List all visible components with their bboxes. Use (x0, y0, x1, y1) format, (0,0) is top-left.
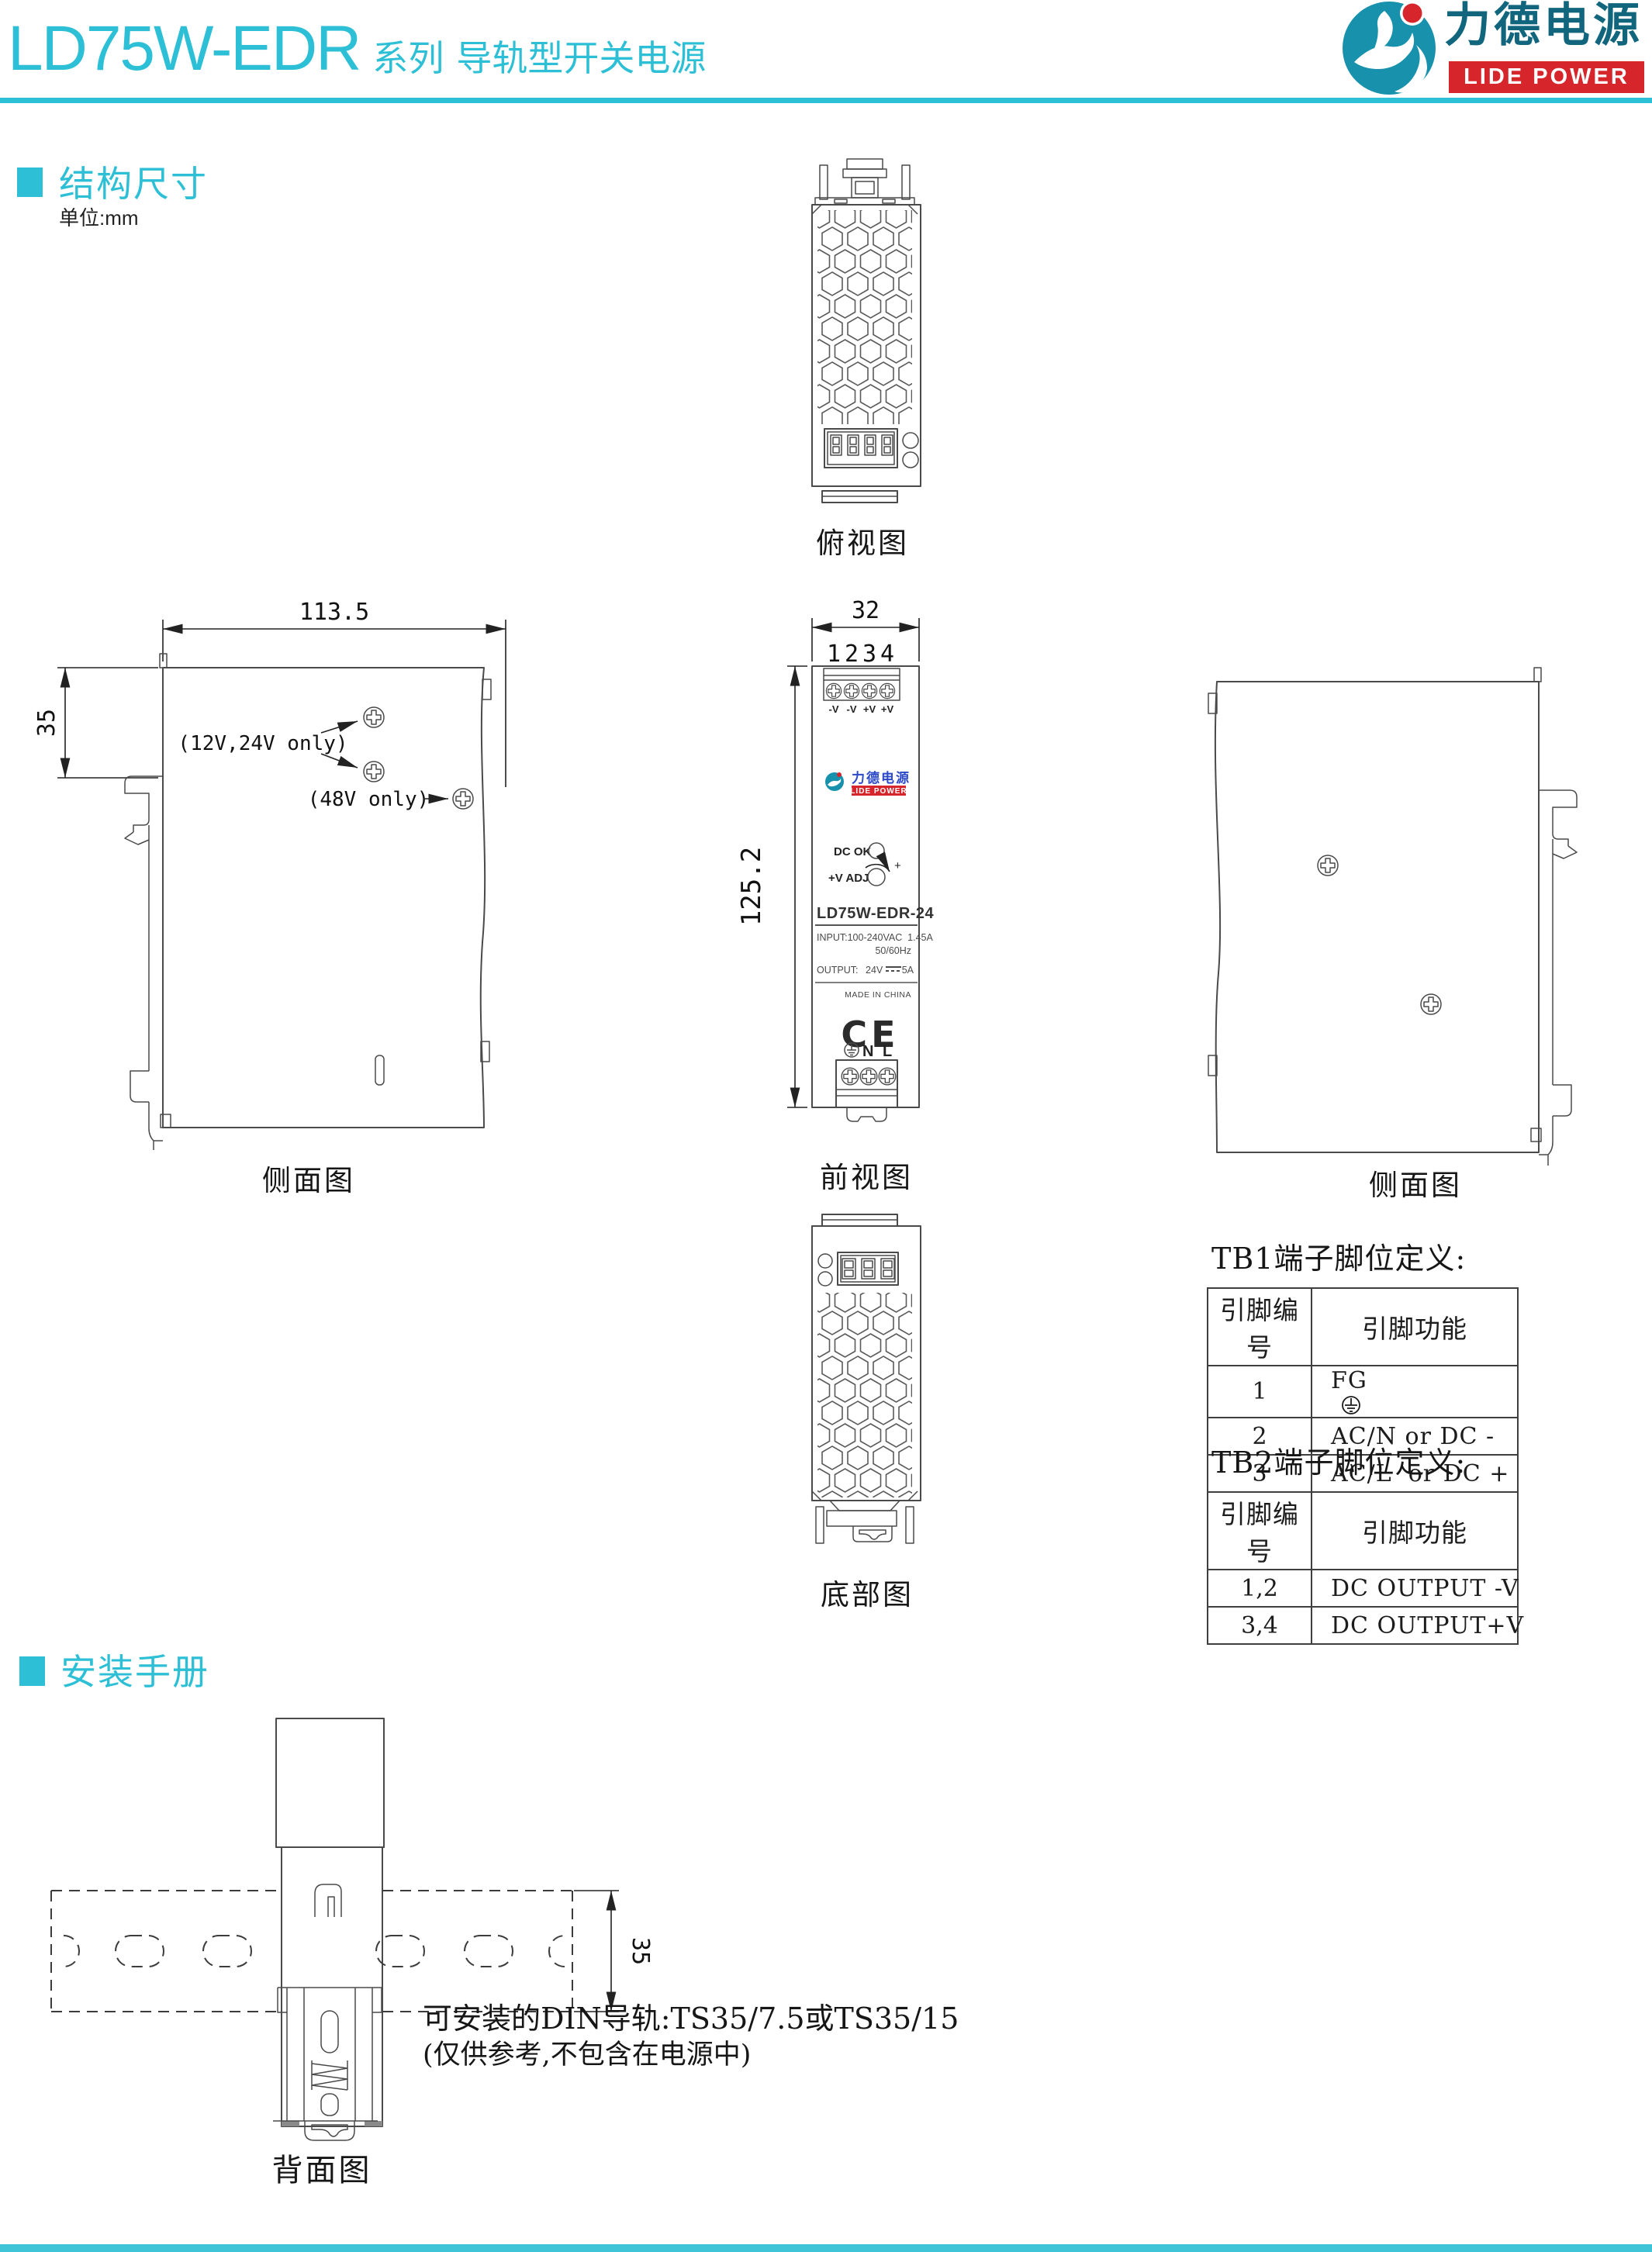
v-adj-plus: + (894, 859, 901, 872)
top-view-caption: 俯视图 (785, 520, 940, 561)
panel-logo-zh: 力德电源 (852, 770, 911, 786)
product-model: LD75W-EDR (8, 17, 360, 81)
panel-output-current: 5A (902, 965, 914, 976)
dim-width-113-5: 113.5 (299, 599, 369, 626)
pin-number-4: 4 (880, 641, 894, 668)
pin-number-2: 2 (845, 641, 859, 668)
terminal-label-neg-v-2: -V (847, 703, 857, 715)
bottom-view-drawing (807, 1198, 923, 1559)
side-view-left-caption: 侧面图 (231, 1157, 386, 1199)
screw-icon (1421, 994, 1441, 1014)
v-adj-label: +V ADJ (828, 872, 869, 885)
section-marker (19, 1656, 45, 1686)
dim-rail-35: 35 (627, 1937, 654, 1965)
tb2-terminal-block (824, 668, 900, 700)
din-rail-note: 可安装的DIN导轨:TS35/7.5或TS35/15 (423, 1995, 959, 2037)
screw-icon (453, 789, 473, 809)
front-view-caption: 前视图 (789, 1154, 944, 1196)
product-series: 系列 (372, 39, 444, 78)
page-title: LD75W-EDR 系列 导轨型开关电源 (8, 17, 706, 81)
tb2-col-func: 引脚功能 (1312, 1492, 1518, 1570)
logo-zh-text: 力德电源 (1444, 0, 1643, 51)
screw-icon (1318, 855, 1338, 876)
pin-number-3: 3 (862, 641, 876, 668)
bottom-view-caption: 底部图 (790, 1571, 945, 1613)
page-footer-bar (0, 2244, 1652, 2252)
tb2-table: 引脚编号 引脚功能 1,2 DC OUTPUT -V 3,4 DC OUTPUT… (1207, 1491, 1519, 1645)
panel-logo-icon (825, 772, 844, 791)
screw-icon (364, 762, 384, 782)
header-divider (0, 98, 1652, 103)
tb1-col-pin: 引脚编号 (1208, 1288, 1312, 1366)
lide-logo-icon (1340, 0, 1443, 98)
terminal-label-pos-v-1: +V (863, 703, 876, 715)
table-row: 1 FG (1208, 1366, 1518, 1418)
note-12v-24v-only: (12V,24V only) (178, 732, 347, 755)
panel-model: LD75W-EDR-24 (817, 905, 935, 922)
tb1-title: TB1端子脚位定义: (1211, 1235, 1520, 1277)
made-in-label: MADE IN CHINA (845, 990, 911, 1000)
panel-input-spec: INPUT:100-240VAC 1.45A (817, 932, 934, 943)
back-view-caption: 背面图 (244, 2145, 399, 2190)
product-type: 导轨型开关电源 (456, 39, 706, 78)
panel-logo-en: LIDE POWER (850, 787, 907, 796)
din-rail-note-2: (仅供参考,不包含在电源中) (423, 2033, 751, 2072)
section-install-label: 安装手册 (60, 1654, 209, 1690)
logo-en-text: LIDE POWER (1464, 64, 1630, 90)
back-view-drawing: 35 (31, 1702, 644, 2167)
section-marker (17, 168, 43, 197)
table-row: 1,2 DC OUTPUT -V (1208, 1570, 1518, 1607)
dim-width-32: 32 (852, 597, 880, 624)
earth-ground-icon (1340, 1394, 1362, 1416)
dc-ok-label: DC OK (834, 845, 872, 858)
ac-line-label: L (883, 1043, 892, 1060)
front-view-drawing: 32 1 2 3 4 125.2 -V -V +V +V (714, 593, 962, 1159)
table-row: 3,4 DC OUTPUT+V (1208, 1607, 1518, 1644)
ac-neutral-label: N (862, 1043, 873, 1060)
side-view-left-drawing: 113.5 35 (12V,24V only) (48V only) (31, 593, 516, 1155)
side-view-right-drawing (1187, 663, 1621, 1179)
note-48v-only: (48V only) (308, 788, 430, 811)
terminal-label-neg-v-1: -V (829, 703, 839, 715)
pin-number-1: 1 (827, 641, 841, 668)
screw-icon (364, 707, 384, 727)
panel-output-label: OUTPUT: (817, 965, 858, 976)
tb2-definition: TB2端子脚位定义: 引脚编号 引脚功能 1,2 DC OUTPUT -V 3,… (1207, 1439, 1520, 1645)
logo-en-badge: LIDE POWER (1449, 61, 1644, 93)
panel-input-freq: 50/60Hz (875, 945, 911, 956)
side-view-right-caption: 侧面图 (1338, 1162, 1493, 1204)
v-adj-potentiometer (868, 869, 885, 886)
tb1-col-func: 引脚功能 (1312, 1288, 1518, 1366)
dim-height-125-2: 125.2 (736, 847, 767, 926)
panel-output-voltage: 24V (866, 965, 883, 976)
datasheet-page: LD75W-EDR 系列 导轨型开关电源 力德电源 LIDE POWER 结构尺… (0, 0, 1652, 2252)
dim-height-35: 35 (33, 709, 60, 737)
section-dimensions-label: 结构尺寸 (59, 166, 208, 202)
tb2-title: TB2端子脚位定义: (1211, 1439, 1520, 1481)
dimension-unit-label: 单位:mm (59, 208, 139, 228)
tb2-col-pin: 引脚编号 (1208, 1492, 1312, 1570)
top-view-drawing (807, 159, 923, 516)
terminal-label-pos-v-2: +V (881, 703, 894, 715)
dc-symbol (886, 967, 901, 971)
